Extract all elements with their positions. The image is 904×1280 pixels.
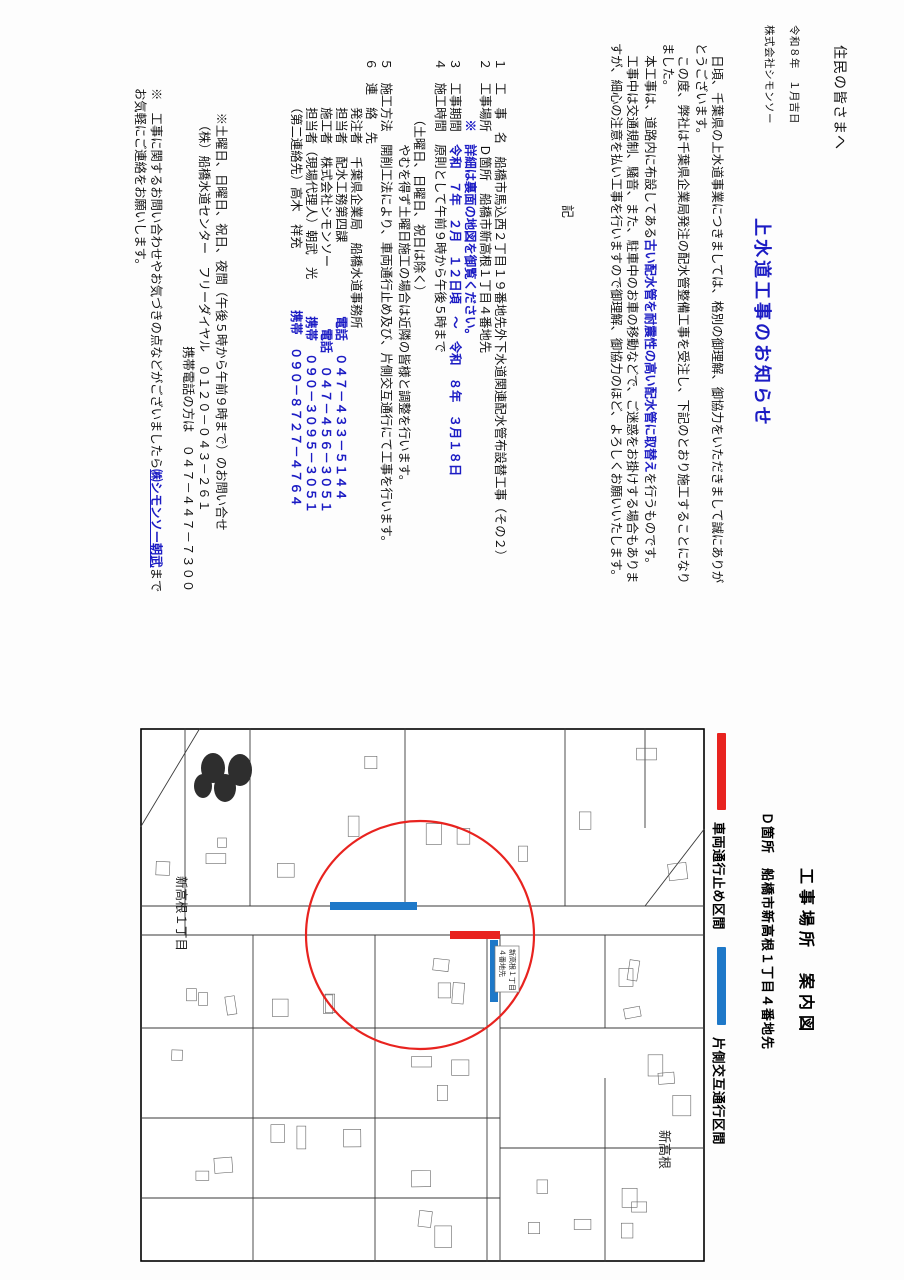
list-line-2: ２ 工事場所 Ｄ箇所 船橋市新高根１丁目４番地先 xyxy=(478,58,491,353)
list-line-5: ４ 施工時間 原則として午前９時から午後５時まで xyxy=(433,58,446,353)
legend-label-road-closed: 車両通行止め区間 xyxy=(710,822,729,930)
list-line-11: 担当者 配水工務第四課 電話 ０４７－４３３－５１４４ xyxy=(334,58,347,501)
list-line-6: （土曜日、日曜日、祝日は除く） xyxy=(412,58,425,298)
issuer-company: 株式会社シモンソー xyxy=(762,25,777,124)
list-line-1: １ 工 事 名 船橋市馬込西２丁目１９番地先外下水道関連配水管布設替工事（その２… xyxy=(493,58,506,562)
map-caption: 工事場所 案内図 xyxy=(796,868,820,1036)
list-line-4: ３ 工事期間 令和 ７年 ２月 １２日頃 ～ 令和 ８年 ３月１８日 xyxy=(448,58,461,476)
page-title: 上水道工事のお知らせ xyxy=(750,218,776,428)
final-note: ※ 工事に関するお問い合わせやお気づきの点などがございましたら㈱シモンソー朝武ま… xyxy=(132,88,164,593)
map-location: Ｄ箇所 船橋市新高根１丁目４番地先 xyxy=(759,812,778,1050)
list-line-8: ５ 施工方法 開削工法により、車両通行止め及び、片側交互通行にて工事を行います。 xyxy=(379,58,392,548)
road-closed-segment xyxy=(450,931,500,939)
p3-pre: 本工事は、道路内に布設してある xyxy=(643,43,657,239)
district-label-1: 新高根１丁目 xyxy=(174,876,189,951)
paragraph-3: 本工事は、道路内に布設してある古い配水管を耐震性の高い配水管に取替えを行うもので… xyxy=(641,43,657,588)
address-callout: 新高根１丁目 ４番地先 xyxy=(495,946,519,992)
note-line-3: 携帯電話の方は ０４７－４４７－７３００ xyxy=(181,88,194,592)
district-label-2: 新高根 xyxy=(657,1130,672,1169)
paragraph-1: 日頃、千葉県の上水道事業につきましては、格別の御理解、御協力をいただきまして誠に… xyxy=(692,43,724,588)
list-line-10: 発注者 千葉県企業局 船橋水道事務所 xyxy=(349,58,362,329)
note-line-1: ※土曜日、日曜日、祝日、夜間（午後５時から午前９時まで）のお問い合せ xyxy=(214,88,227,531)
letter-body: 日頃、千葉県の上水道事業につきましては、格別の御理解、御協力をいただきまして誠に… xyxy=(605,43,724,588)
alternating-segment-1 xyxy=(330,902,417,910)
greeting: 住民の皆さまへ xyxy=(830,45,850,150)
list-line-14: （第二連絡先）高木 祥充 携帯 ０９０－８７２７－４７６４ xyxy=(289,58,302,507)
paragraph-2: この度、弊社は千葉県企業局発注の配水管整備工事を受注し、下記のとおり施工すること… xyxy=(659,43,691,588)
list-line-12: 施工者 株式会社シモンソー 電話 ０４７－４５６－３０５１ xyxy=(319,58,332,513)
final-note-contact: ㈱シモンソー朝武 xyxy=(149,469,163,567)
legend-label-alternating: 片側交互通行区間 xyxy=(710,1037,729,1145)
list-line-9: ６ 連 絡 先 xyxy=(364,58,377,144)
issue-date: 令和８年 １月吉日 xyxy=(787,25,802,124)
paragraph-4: 工事中は交通規制、騒音、また、駐車中のお車の移動などで、ご迷惑をお掛けする場合も… xyxy=(607,43,639,588)
notice-page: 住民の皆さまへ 令和８年 １月吉日 株式会社シモンソー 上水道工事のお知らせ 日… xyxy=(0,0,904,1280)
list-line-3: ※ 詳細は裏面の地図を御覧ください。 xyxy=(463,58,476,341)
list-line-13: 担当者（現場代理人）朝武 光 携帯 ０９０－３０９５－３０５１ xyxy=(304,58,317,513)
p3-post: を行うものです。 xyxy=(643,473,657,570)
ki-marker: 記 xyxy=(559,205,578,220)
screenshot-canvas: 住民の皆さまへ 令和８年 １月吉日 株式会社シモンソー 上水道工事のお知らせ 日… xyxy=(0,0,904,1280)
legend-swatch-alternating xyxy=(717,947,726,1025)
note-line-2: （株）船橋水道センター フリーダイヤル ０１２０－０４３－２６１ xyxy=(197,88,210,512)
legend-swatch-road-closed xyxy=(717,733,726,810)
list-line-7: やむを得ず土曜日施工の場合は近隣の皆様と調整を行います。 xyxy=(397,58,410,487)
p3-highlight: 古い配水管を耐震性の高い配水管に取替え xyxy=(643,239,657,473)
final-note-pre: ※ 工事に関するお問い合わせやお気づきの点などがございましたら xyxy=(149,88,163,469)
map-border xyxy=(141,729,704,1261)
guide-map: 新高根１丁目 ４番地先 新高根１丁目 新高根 xyxy=(140,728,705,1262)
